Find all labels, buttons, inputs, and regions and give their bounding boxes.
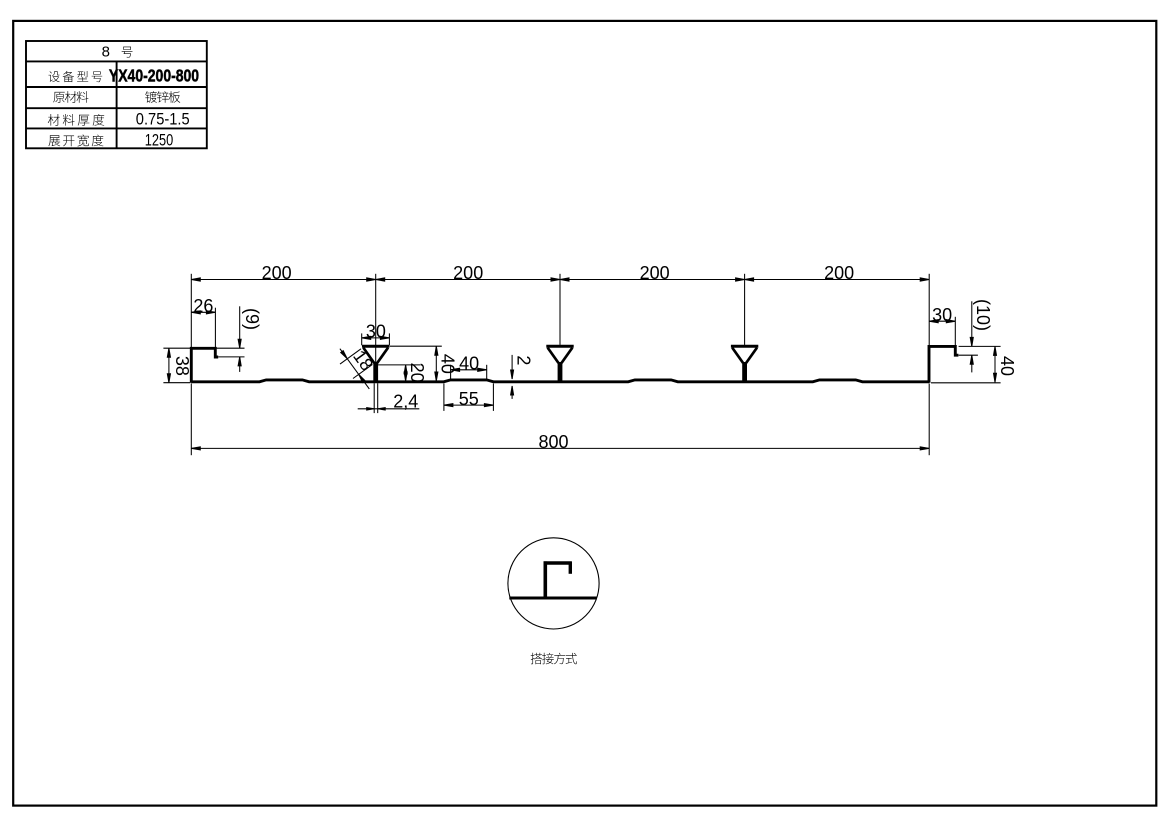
svg-text:40: 40 bbox=[997, 356, 1017, 376]
svg-text:(9): (9) bbox=[242, 308, 262, 330]
svg-text:55: 55 bbox=[459, 389, 479, 409]
svg-text:200: 200 bbox=[824, 263, 854, 283]
svg-text:38: 38 bbox=[172, 356, 192, 376]
svg-text:200: 200 bbox=[640, 263, 670, 283]
svg-text:YX40-200-800: YX40-200-800 bbox=[109, 67, 199, 86]
svg-text:8: 8 bbox=[102, 43, 110, 60]
svg-text:2: 2 bbox=[513, 355, 533, 365]
svg-text:800: 800 bbox=[538, 432, 568, 452]
svg-text:30: 30 bbox=[932, 305, 952, 325]
svg-text:0.75-1.5: 0.75-1.5 bbox=[136, 111, 190, 129]
svg-text:30: 30 bbox=[366, 322, 386, 342]
svg-text:20: 20 bbox=[407, 363, 427, 383]
svg-text:200: 200 bbox=[453, 263, 483, 283]
svg-text:26: 26 bbox=[193, 296, 213, 316]
svg-text:2,4: 2,4 bbox=[393, 392, 418, 412]
svg-text:18: 18 bbox=[349, 346, 377, 374]
svg-text:40: 40 bbox=[459, 354, 479, 374]
svg-text:(10): (10) bbox=[973, 299, 993, 331]
svg-text:1250: 1250 bbox=[145, 131, 174, 150]
svg-text:200: 200 bbox=[262, 263, 292, 283]
